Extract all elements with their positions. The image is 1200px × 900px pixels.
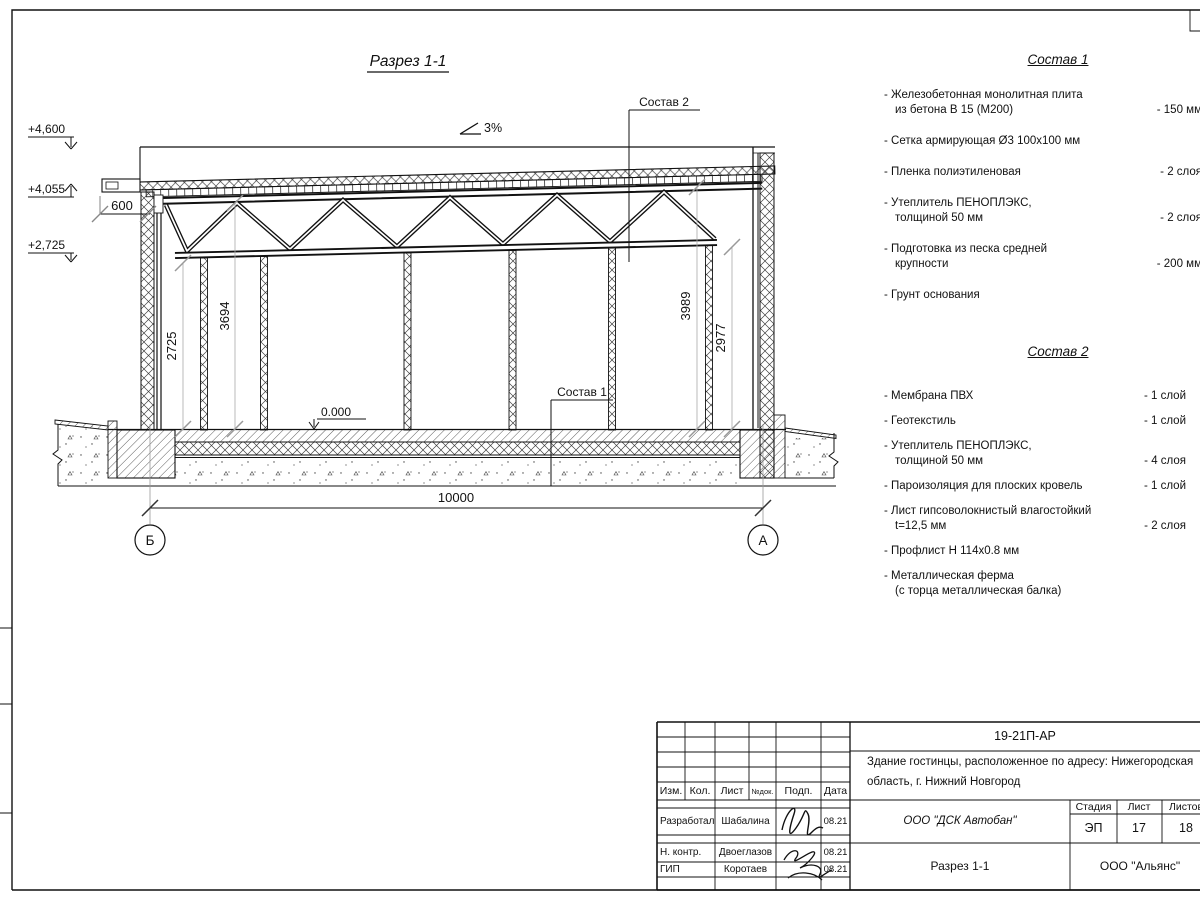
- zero-level-mark: 0.000: [309, 405, 366, 429]
- list-item: - Сетка армирующая Ø3 100х100 мм: [884, 134, 1200, 149]
- overhang-dim-text: 600: [111, 198, 133, 213]
- col-kol: Кол.: [685, 782, 715, 800]
- row-name: Двоеглазов: [715, 843, 776, 862]
- sostav2-heading: Состав 2: [978, 344, 1138, 360]
- row-name: Коротаев: [715, 862, 776, 877]
- sheets-label: Листов: [1163, 801, 1200, 814]
- callout-sostav1-text: Состав 1: [557, 385, 607, 399]
- axis-b-label: Б: [146, 533, 155, 548]
- grid-axes: Б А: [135, 525, 778, 555]
- left-wall: [141, 192, 163, 430]
- list-item: - Пленка полиэтиленовая - 2 слоя: [884, 165, 1200, 180]
- col-ndok: №док.: [749, 782, 776, 800]
- list-item: - Профлист Н 114х0.8 мм: [884, 544, 1186, 559]
- stage-value: ЭП: [1071, 815, 1116, 842]
- list-item: - Утеплитель ПЕНОПЛЭКС, толщиной 50 мм -…: [884, 439, 1186, 469]
- axis-a-label: А: [758, 533, 767, 548]
- signature: [778, 842, 834, 890]
- row-role: ГИП: [660, 862, 715, 877]
- interior-columns: [201, 246, 713, 431]
- view-title-text: Разрез 1-1: [370, 53, 447, 70]
- elevation-4600: +4,600: [28, 122, 65, 136]
- col-izm: Изм.: [657, 782, 685, 800]
- drawing-sheet: Разрез 1-1: [0, 0, 1200, 900]
- slope-symbol: 3%: [460, 121, 502, 135]
- view-title: Разрез 1-1: [367, 53, 449, 72]
- zero-level-text: 0.000: [321, 405, 351, 419]
- right-wall: [753, 147, 774, 478]
- elevation-marks: +4,600 +4,055 +2,725: [28, 122, 77, 262]
- signature: [776, 798, 826, 848]
- doc-number: 19-21П-АР: [852, 723, 1198, 750]
- elevation-4055: +4,055: [28, 182, 65, 196]
- design-firm: ООО "Альянс": [1071, 844, 1200, 889]
- object-description: Здание гостинцы, расположенное по адресу…: [867, 753, 1200, 792]
- left-parapet: [102, 179, 140, 192]
- elevation-2725: +2,725: [28, 238, 65, 252]
- sheet-value: 17: [1117, 815, 1161, 842]
- list-item: - Утеплитель ПЕНОПЛЭКС, толщиной 50 мм -…: [884, 196, 1200, 226]
- contractor-company: ООО "ДСК Автобан": [852, 801, 1068, 842]
- stage-label: Стадия: [1071, 801, 1116, 814]
- materials-panel-sostav1: Состав 1 - Железобетонная монолитная пли…: [884, 52, 1200, 319]
- sheets-value: 18: [1163, 815, 1200, 842]
- row-role: Разработал: [660, 808, 715, 835]
- materials-panel-sostav2: Состав 2 - Мембрана ПВХ - 1 слой - Геоте…: [884, 344, 1186, 609]
- dim-2977: 2977: [713, 324, 728, 353]
- list-item: - Мембрана ПВХ - 1 слой: [884, 389, 1186, 404]
- list-item: - Железобетонная монолитная плита из бет…: [884, 88, 1200, 118]
- list-item: - Геотекстиль - 1 слой: [884, 414, 1186, 429]
- slope-label: 3%: [484, 121, 502, 135]
- dim-3989: 3989: [678, 292, 693, 321]
- col-list: Лист: [715, 782, 749, 800]
- list-item: - Грунт основания: [884, 288, 1200, 303]
- sheet-title: Разрез 1-1: [852, 844, 1068, 889]
- dim-2725: 2725: [164, 332, 179, 361]
- list-item: - Металлическая ферма (с торца металличе…: [884, 569, 1186, 599]
- list-item: - Подготовка из песка средней крупности …: [884, 242, 1200, 272]
- list-item: - Лист гипсоволокнистый влагостойкий t=1…: [884, 504, 1186, 534]
- callout-sostav2-text: Состав 2: [639, 95, 689, 109]
- list-item: - Пароизоляция для плоских кровель - 1 с…: [884, 479, 1186, 494]
- vertical-dimensions: 2725 3694 3989 2977: [164, 179, 740, 437]
- row-role: Н. контр.: [660, 843, 715, 862]
- row-name: Шабалина: [715, 808, 776, 835]
- span-dim-text: 10000: [438, 490, 474, 505]
- sheet-label: Лист: [1117, 801, 1161, 814]
- sostav1-heading: Состав 1: [978, 52, 1138, 68]
- dim-3694: 3694: [217, 302, 232, 331]
